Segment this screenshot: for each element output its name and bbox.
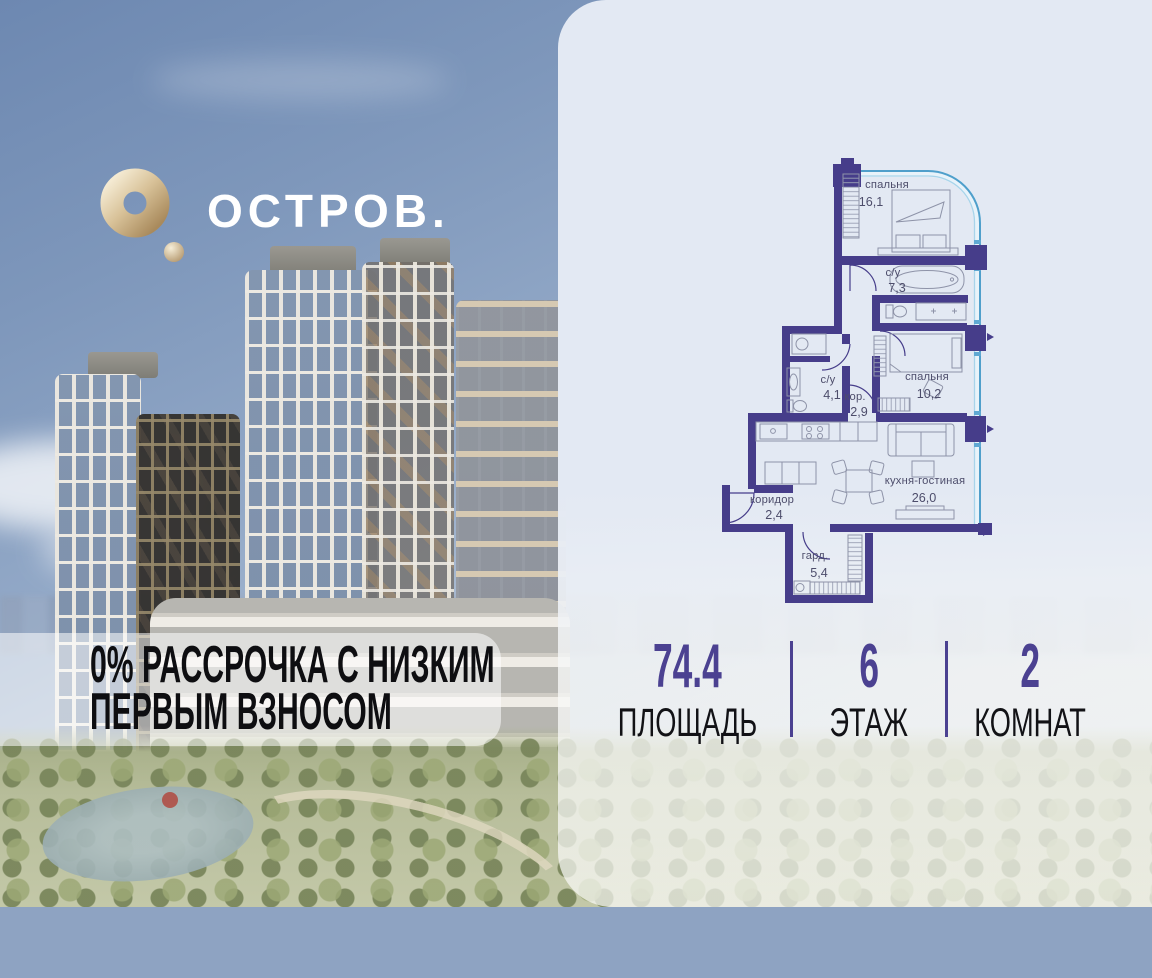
bed xyxy=(890,334,962,372)
room-area: 2,9 xyxy=(850,405,868,419)
stat-value: 2 xyxy=(948,638,1112,696)
room-label: кухня-гостиная xyxy=(885,475,965,487)
vanity xyxy=(916,303,966,320)
room-area: 4,1 xyxy=(823,388,841,402)
kitchen-counter xyxy=(756,422,877,441)
room-area: 2,4 xyxy=(765,508,783,522)
stat-value: 6 xyxy=(793,638,945,696)
tv-console xyxy=(896,510,954,519)
toilet xyxy=(886,305,893,318)
room-label: спальня xyxy=(865,179,909,191)
room-label: спальня xyxy=(905,371,949,383)
room-label: с/у xyxy=(886,267,901,279)
shelving xyxy=(810,582,860,594)
cabinets xyxy=(765,462,816,484)
floorplan: спальня 16,1 с/у 7,3 с/у 4,1 кор. 2,9 сп… xyxy=(700,140,1030,620)
room-label: коридор xyxy=(750,494,794,506)
stat-value: 74.4 xyxy=(585,638,790,696)
room-area: 10,2 xyxy=(917,387,942,401)
stat-area: 74.4 ПЛОЩАДЬ xyxy=(585,638,790,740)
room-area: 7,3 xyxy=(888,281,906,295)
dresser xyxy=(878,398,910,411)
room-area: 26,0 xyxy=(912,491,937,505)
logo xyxy=(88,156,192,274)
room-label: кор. xyxy=(844,391,865,403)
listing-card: { "brand": { "name": "ОСТРОВ.", "logo_ic… xyxy=(0,0,1152,907)
torus-icon xyxy=(88,156,192,274)
stat-floor: 6 ЭТАЖ xyxy=(793,638,945,740)
shelving xyxy=(848,535,862,581)
stat-label: ЭТАЖ xyxy=(793,706,945,740)
promo-line-1: 0% РАССРОЧКА С НИЗКИМ xyxy=(90,642,495,689)
stats-bar: 74.4 ПЛОЩАДЬ 6 ЭТАЖ 2 КОМНАТ xyxy=(585,638,1112,740)
cloud xyxy=(150,60,450,100)
stat-rooms: 2 КОМНАТ xyxy=(948,638,1112,740)
brand-title: ОСТРОВ. xyxy=(207,184,450,238)
promo-banner: 0% РАССРОЧКА С НИЗКИМ ПЕРВЫМ ВЗНОСОМ xyxy=(0,633,501,746)
room-label: гард. xyxy=(802,550,829,562)
washing-machine xyxy=(792,334,826,354)
stove xyxy=(802,424,829,439)
room-area: 5,4 xyxy=(810,566,828,580)
stat-label: КОМНАТ xyxy=(948,706,1112,740)
stat-label: ПЛОЩАДЬ xyxy=(585,706,790,740)
dining-table xyxy=(846,470,872,492)
playground-spot xyxy=(162,792,178,808)
room-label: с/у xyxy=(821,374,836,386)
promo-line-2: ПЕРВЫМ ВЗНОСОМ xyxy=(90,689,495,736)
closet xyxy=(843,174,859,238)
wardrobe xyxy=(874,336,886,376)
room-area: 16,1 xyxy=(859,195,884,209)
bed xyxy=(892,190,950,252)
